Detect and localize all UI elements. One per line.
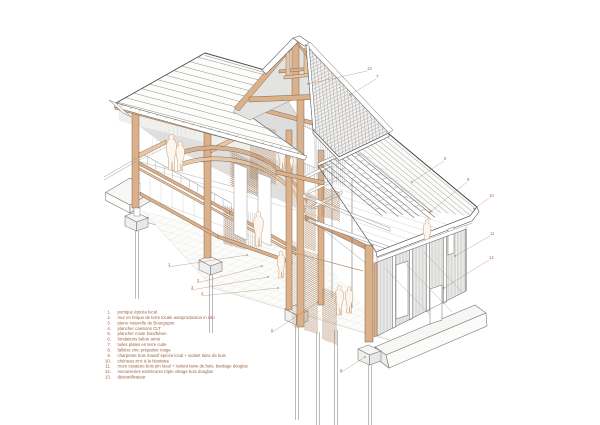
svg-text:plancher caissons CLT: plancher caissons CLT [118,326,162,331]
svg-text:12.: 12. [105,369,111,374]
svg-text:9.: 9. [107,353,111,358]
svg-text:tuiles plates en terre cuite: tuiles plates en terre cuite [118,342,168,347]
svg-text:plancher mixte bois/béton: plancher mixte bois/béton [118,331,168,336]
svg-text:fondations béton armé: fondations béton armé [118,337,161,342]
svg-text:11: 11 [490,231,495,236]
svg-text:8.: 8. [107,347,111,352]
svg-text:7.: 7. [107,342,111,347]
svg-text:portique épicéa local: portique épicéa local [118,310,157,315]
svg-text:4.: 4. [107,326,111,331]
svg-text:10.: 10. [105,358,111,363]
svg-text:2.: 2. [107,315,111,320]
svg-text:faîtière zinc prépatiné rouge: faîtière zinc prépatiné rouge [118,347,172,352]
svg-text:pierre naturelle de Bourgogne: pierre naturelle de Bourgogne [118,320,175,325]
svg-text:11.: 11. [105,364,111,369]
svg-text:3.: 3. [107,320,111,325]
svg-text:chéneau zinc à la Nantaise: chéneau zinc à la Nantaise [118,358,170,363]
svg-text:1.: 1. [107,310,111,315]
svg-text:murs ossature bois pin local +: murs ossature bois pin local + isolant l… [118,364,248,369]
svg-text:menuiseries extérieures triple: menuiseries extérieures triple vitrage b… [118,369,214,374]
svg-text:13.: 13. [105,375,111,380]
svg-text:12: 12 [489,255,494,260]
svg-text:5.: 5. [107,331,111,336]
svg-text:10: 10 [489,193,494,198]
svg-text:13: 13 [367,66,372,71]
svg-text:déstratificateur: déstratificateur [118,375,147,380]
svg-text:mur en brique de terre locale: mur en brique de terre locale autoproduc… [118,315,216,320]
svg-text:6.: 6. [107,337,111,342]
svg-text:charpente bois massif épicéa l: charpente bois massif épicéa local + iso… [118,353,226,358]
